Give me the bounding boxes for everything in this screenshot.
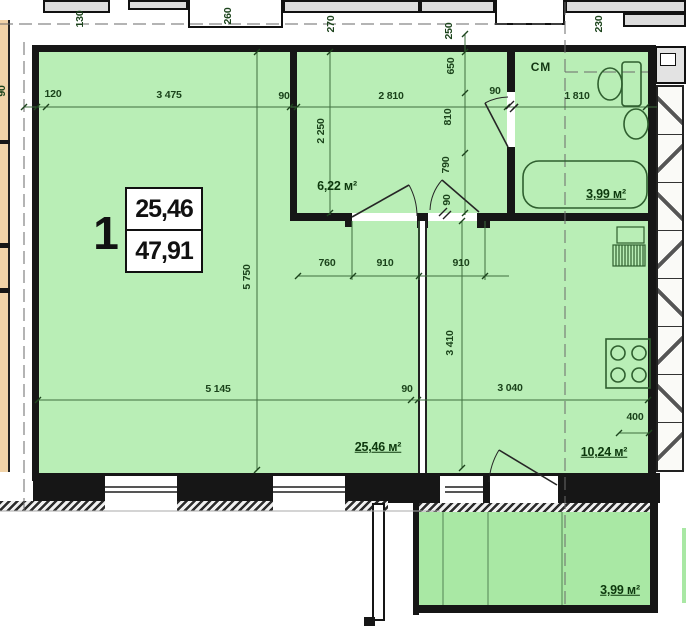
dim-label: 650	[446, 58, 457, 75]
sink-icon	[624, 109, 648, 139]
dim-label: 90	[401, 384, 412, 395]
dim-label: 5 750	[242, 264, 253, 289]
plate-total-area: 47,91	[127, 231, 201, 271]
dim-label: 270	[326, 16, 337, 33]
washing-machine-label: СМ	[531, 61, 552, 73]
dim-label: 2 810	[378, 91, 403, 102]
dim-label: 910	[377, 258, 394, 269]
dim-label: 400	[627, 412, 644, 423]
dim-label: 910	[453, 258, 470, 269]
axis-lines	[0, 2, 648, 608]
door-living	[352, 185, 417, 217]
area-label-hall: 6,22 м²	[317, 180, 357, 193]
radiator-icon	[613, 227, 645, 266]
balcony-glazing	[443, 512, 562, 605]
toilet-icon	[598, 62, 641, 106]
dim-label: 2 250	[316, 118, 327, 143]
dim-label: 130	[75, 11, 86, 28]
door-kitchen	[430, 180, 479, 212]
bathtub-icon	[523, 161, 647, 208]
dim-label: 260	[223, 8, 234, 25]
dim-label: 90	[278, 91, 289, 102]
area-label-bathroom: 3,99 м²	[586, 188, 626, 201]
stove-icon	[606, 339, 650, 388]
dim-label: 250	[444, 23, 455, 40]
dim-label: 230	[594, 16, 605, 33]
area-plate: 25,46 47,91	[125, 187, 203, 273]
dim-label: 3 040	[497, 383, 522, 394]
dim-label: 5 145	[205, 384, 230, 395]
door-bathroom	[485, 97, 508, 147]
dim-label: 760	[319, 258, 336, 269]
floor-plan: 1 25,46 47,91 90 130 260 270 230 250 650…	[0, 0, 686, 636]
dimension-lines	[24, 34, 657, 470]
window-glazing	[105, 487, 483, 492]
dim-label: 3 475	[156, 90, 181, 101]
plate-living-area: 25,46	[127, 189, 201, 231]
dim-label: 790	[441, 157, 452, 174]
apartment-number: 1	[93, 206, 119, 260]
area-label-balcony: 3,99 м²	[600, 584, 640, 597]
dim-label: 90	[442, 194, 453, 205]
dim-label: 90	[489, 86, 500, 97]
dim-label: 120	[45, 89, 62, 100]
dim-label: 810	[443, 109, 454, 126]
dim-label: 3 410	[445, 330, 456, 355]
dim-label: 1 810	[564, 91, 589, 102]
door-balcony	[489, 450, 557, 485]
area-label-living: 25,46 м²	[355, 441, 402, 454]
door-swings	[352, 97, 557, 485]
area-label-kitchen: 10,24 м²	[581, 446, 628, 459]
dim-label: 90	[0, 85, 7, 96]
